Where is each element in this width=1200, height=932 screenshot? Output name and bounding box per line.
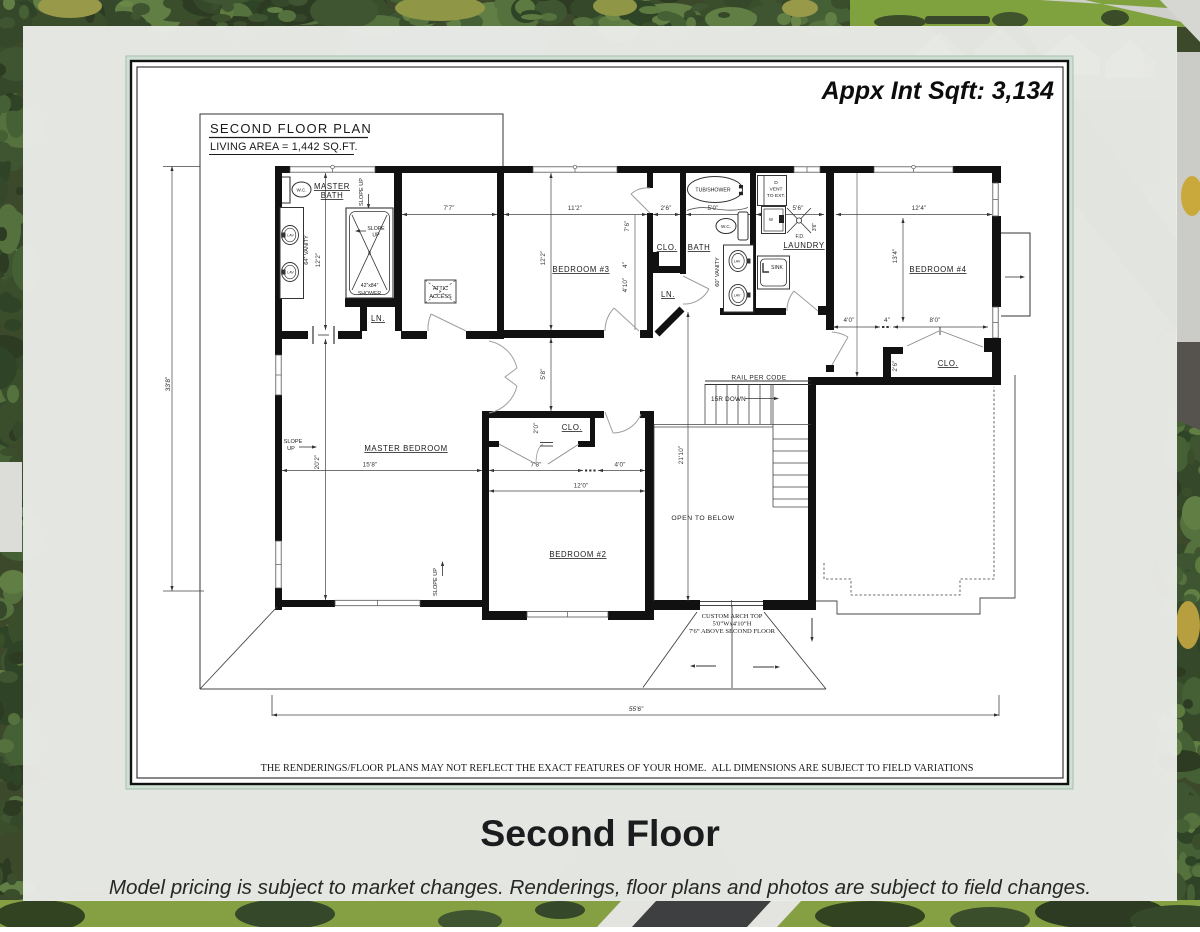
svg-text:33'8”: 33'8”	[165, 377, 172, 391]
svg-text:UP: UP	[372, 233, 380, 239]
svg-text:LAV: LAV	[287, 234, 294, 238]
svg-text:Second Floor: Second Floor	[480, 812, 720, 854]
svg-text:TO EXT.: TO EXT.	[767, 193, 785, 199]
svg-text:3'6”: 3'6”	[812, 223, 818, 232]
svg-text:4'0”: 4'0”	[843, 317, 854, 324]
svg-text:LN.: LN.	[371, 314, 385, 323]
svg-text:BATH: BATH	[688, 243, 711, 252]
svg-text:LAV: LAV	[734, 294, 741, 298]
svg-text:SECOND FLOOR PLAN: SECOND FLOOR PLAN	[210, 121, 372, 136]
svg-text:BEDROOM #3: BEDROOM #3	[552, 265, 609, 274]
svg-text:W: W	[769, 217, 773, 222]
svg-text:13'4”: 13'4”	[892, 249, 899, 264]
svg-text:SLOPE: SLOPE	[284, 439, 303, 445]
svg-text:15R DOWN: 15R DOWN	[711, 396, 746, 403]
svg-text:4”: 4”	[884, 317, 890, 324]
svg-text:CLO.: CLO.	[657, 243, 678, 252]
svg-text:5'0”Wx4'10”H: 5'0”Wx4'10”H	[713, 621, 752, 628]
svg-text:VENT: VENT	[769, 187, 782, 193]
svg-text:BEDROOM #4: BEDROOM #4	[909, 265, 966, 274]
svg-text:BATH: BATH	[321, 191, 344, 200]
svg-text:12'2”: 12'2”	[315, 253, 322, 268]
svg-text:20'2”: 20'2”	[314, 455, 321, 470]
svg-text:ATTIC: ATTIC	[433, 286, 448, 292]
svg-text:LAV: LAV	[287, 271, 294, 275]
svg-text:42”x84”: 42”x84”	[361, 283, 379, 289]
svg-text:15'8”: 15'8”	[363, 462, 378, 469]
svg-text:SLOPE: SLOPE	[367, 226, 385, 232]
svg-text:F.D.: F.D.	[796, 234, 805, 240]
svg-text:MASTER BEDROOM: MASTER BEDROOM	[364, 444, 447, 453]
svg-text:OPEN TO BELOW: OPEN TO BELOW	[671, 515, 734, 522]
svg-text:THE RENDERINGS/FLOOR PLANS MAY: THE RENDERINGS/FLOOR PLANS MAY NOT REFLE…	[261, 763, 974, 774]
svg-text:SLOPE UP: SLOPE UP	[359, 178, 365, 206]
svg-text:Appx Int Sqft: 3,134: Appx Int Sqft: 3,134	[821, 77, 1054, 105]
svg-text:4'10”: 4'10”	[622, 278, 629, 293]
svg-text:ACCESS: ACCESS	[429, 294, 452, 300]
svg-text:2'0”: 2'0”	[533, 422, 540, 433]
svg-text:0: 0	[368, 251, 371, 257]
svg-text:LIVING AREA = 1,442 SQ.FT.: LIVING AREA = 1,442 SQ.FT.	[210, 141, 358, 153]
svg-text:5'8”: 5'8”	[540, 368, 547, 379]
svg-text:60” VANITY: 60” VANITY	[715, 257, 721, 287]
svg-text:CLO.: CLO.	[938, 359, 959, 368]
svg-text:SLOPE UP: SLOPE UP	[433, 568, 439, 596]
svg-text:LAV: LAV	[734, 260, 741, 264]
svg-text:2'6”: 2'6”	[660, 205, 671, 212]
svg-text:D: D	[774, 180, 778, 186]
svg-text:UP: UP	[287, 446, 295, 452]
svg-text:7'6” ABOVE SECOND FLOOR: 7'6” ABOVE SECOND FLOOR	[689, 628, 776, 635]
svg-text:7'6”: 7'6”	[624, 220, 631, 231]
svg-text:Model pricing is subject to ma: Model pricing is subject to market chang…	[109, 876, 1091, 899]
svg-text:CUSTOM ARCH TOP: CUSTOM ARCH TOP	[702, 613, 763, 620]
svg-text:LAUNDRY: LAUNDRY	[783, 241, 825, 250]
svg-text:W.C.: W.C.	[721, 224, 731, 229]
svg-text:4”: 4”	[622, 262, 629, 268]
svg-text:CLO.: CLO.	[562, 423, 583, 432]
svg-text:21'10”: 21'10”	[678, 446, 685, 465]
svg-text:SHOWER: SHOWER	[358, 291, 382, 297]
svg-text:12'4”: 12'4”	[912, 205, 927, 212]
svg-text:5'6”: 5'6”	[792, 205, 803, 212]
svg-text:W.C.: W.C.	[297, 188, 307, 193]
svg-text:8'0”: 8'0”	[929, 317, 940, 324]
svg-text:55'6”: 55'6”	[629, 706, 644, 713]
svg-text:MASTER: MASTER	[314, 182, 350, 191]
svg-text:11'2”: 11'2”	[568, 205, 582, 212]
svg-text:12'0”: 12'0”	[574, 483, 589, 490]
svg-text:SINK: SINK	[771, 265, 783, 271]
svg-text:TUB/SHOWER: TUB/SHOWER	[695, 188, 730, 194]
svg-text:64” VANITY: 64” VANITY	[304, 235, 310, 265]
svg-text:4'0”: 4'0”	[614, 462, 625, 469]
svg-text:12'2”: 12'2”	[540, 251, 547, 266]
svg-text:BEDROOM #2: BEDROOM #2	[549, 550, 606, 559]
svg-text:2'6”: 2'6”	[892, 360, 899, 371]
svg-text:RAIL PER CODE: RAIL PER CODE	[731, 375, 786, 382]
svg-text:LN.: LN.	[661, 290, 675, 299]
svg-text:7'7”: 7'7”	[443, 205, 454, 212]
